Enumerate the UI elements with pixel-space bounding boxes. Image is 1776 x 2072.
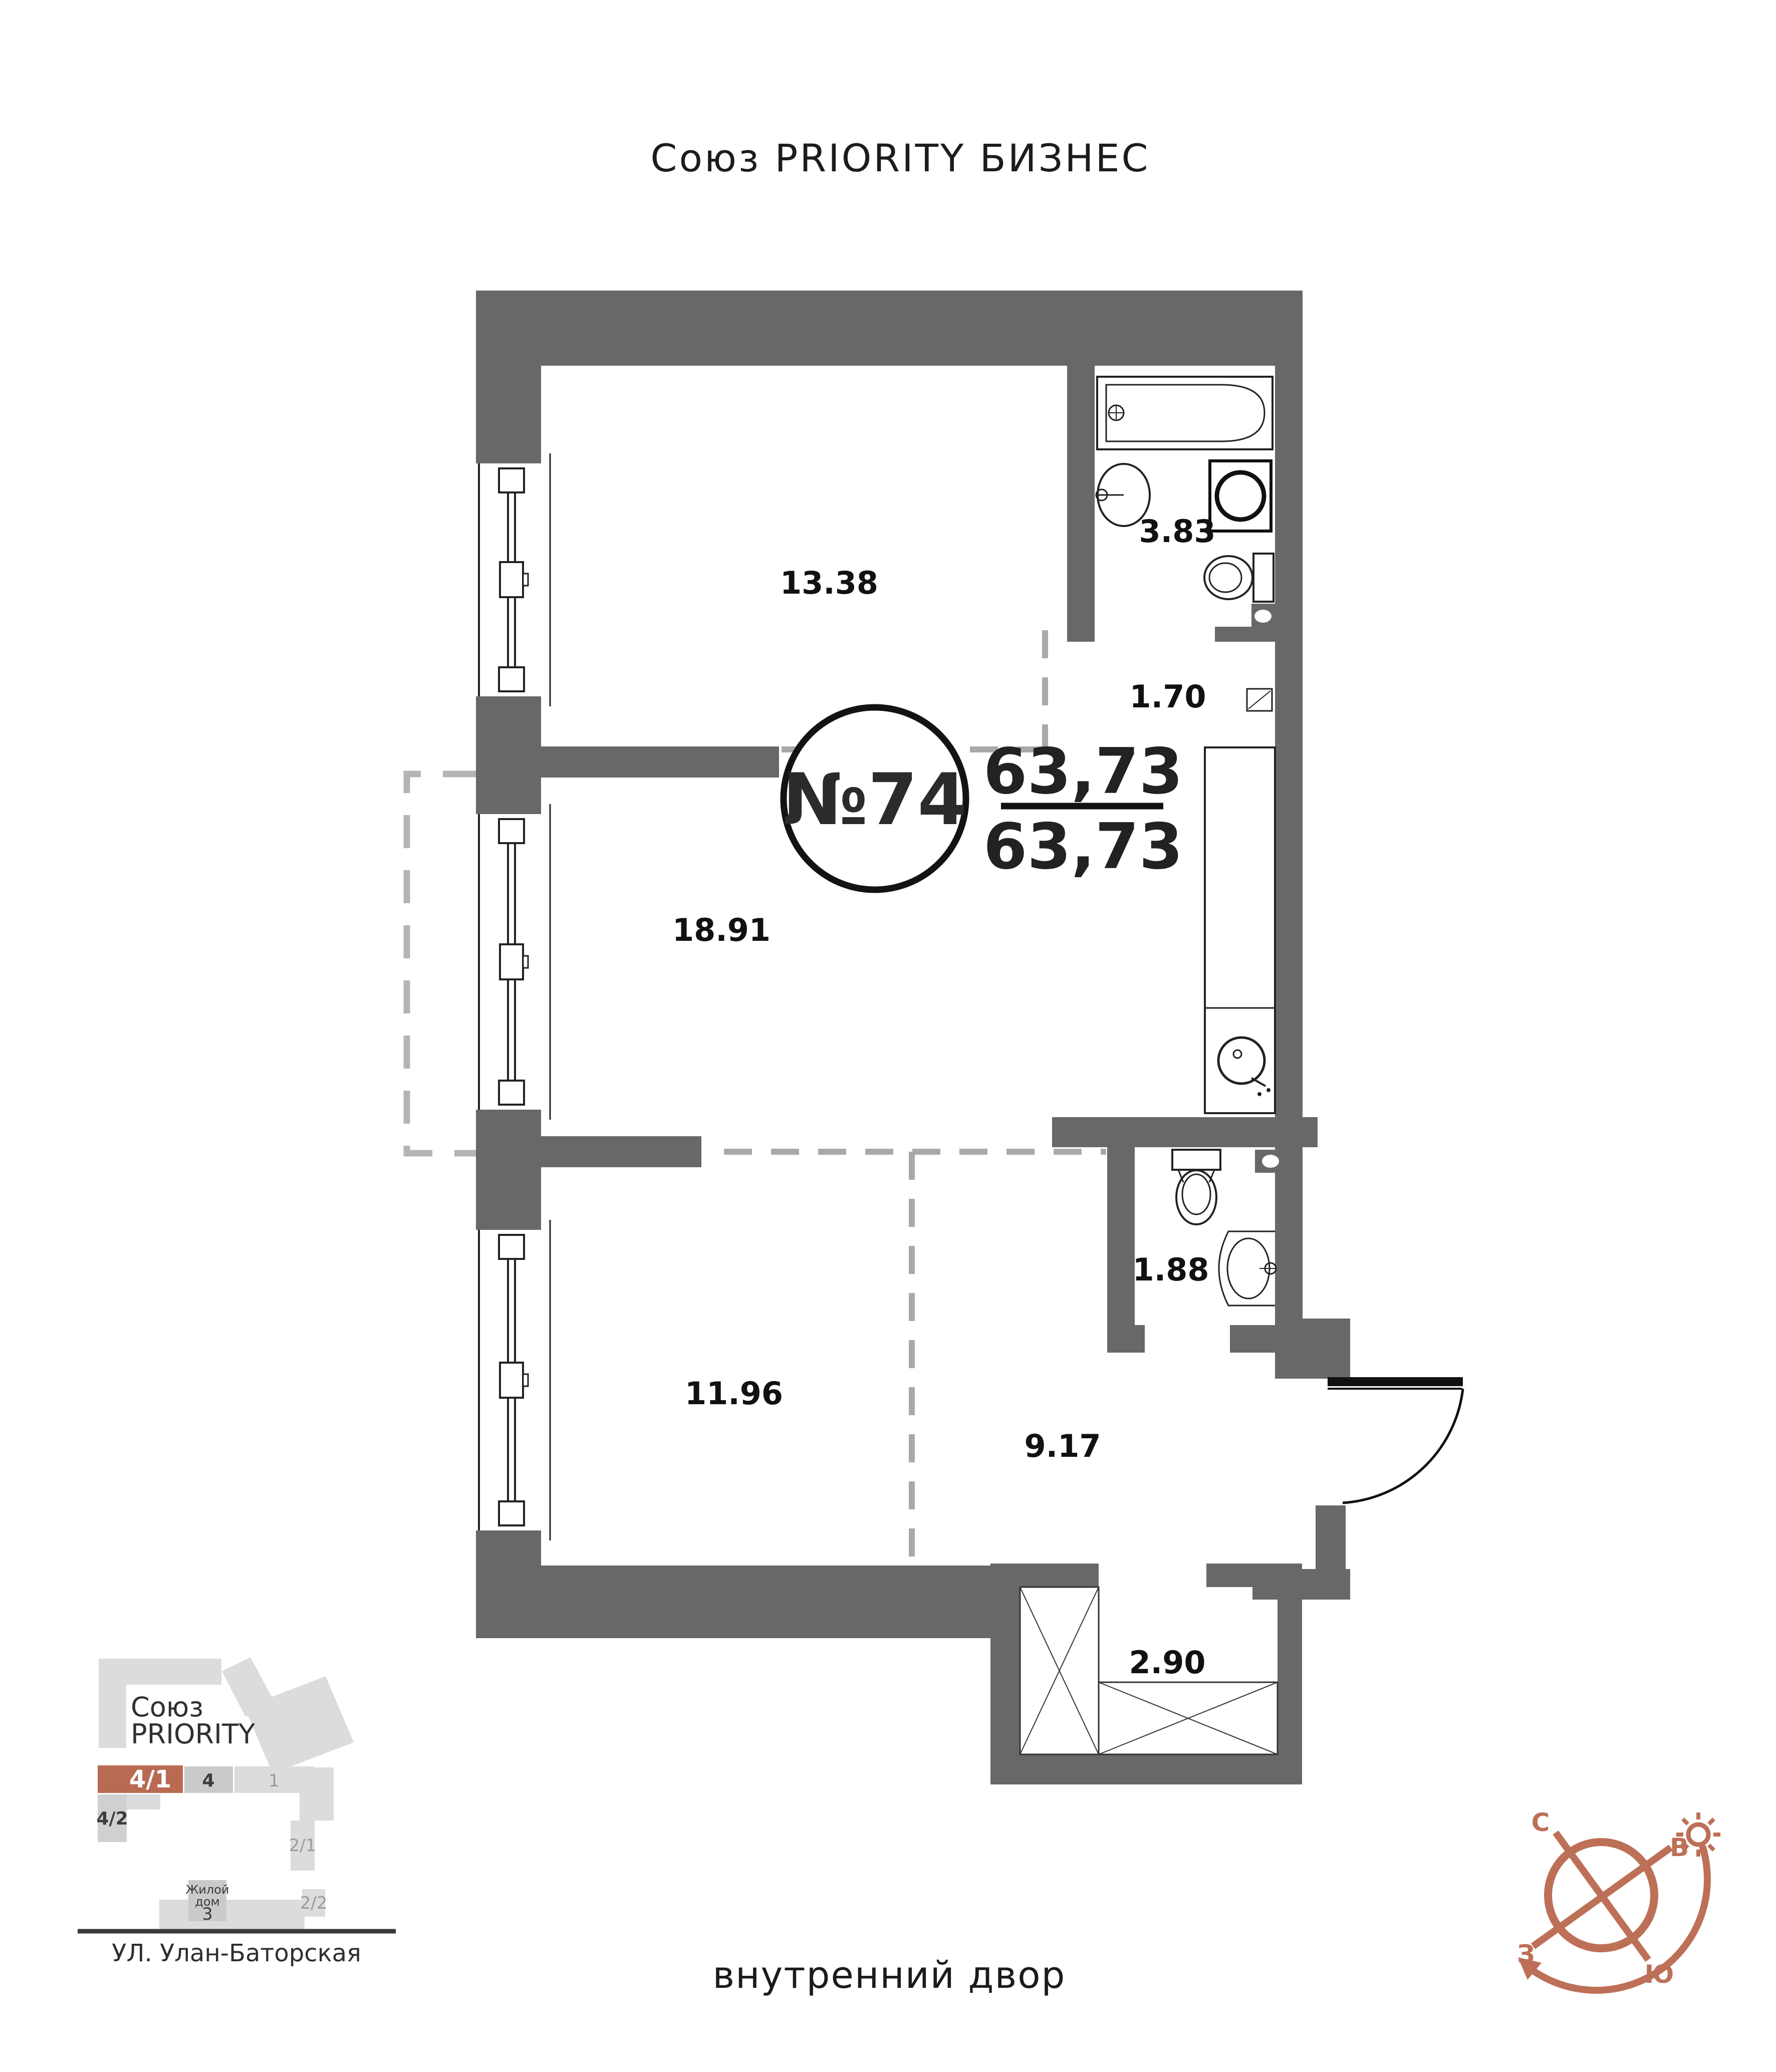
wall-partition-stub-1 [541, 746, 779, 778]
wall-balcony-left [990, 1564, 1020, 1784]
minimap-block-label: 4/2 [96, 1808, 128, 1829]
toilet-icon [1172, 1150, 1220, 1224]
minimap-block-4: 4 [184, 1766, 233, 1793]
compass-west: З [1517, 1940, 1535, 1969]
room-label-balcony: 2.90 [1129, 1644, 1206, 1681]
wall-left-1 [476, 366, 541, 463]
apartment-number: №74 [783, 758, 967, 841]
window-icon [479, 453, 550, 706]
street-label: УЛ. Улан-Баторская [112, 1939, 361, 1967]
wall-bath-left [1067, 366, 1095, 642]
wc-sink-icon [1219, 1231, 1277, 1306]
minimap-house-block: Жилой дом 3 [185, 1880, 229, 1924]
minimap-project-line2: PRIORITY [131, 1718, 256, 1750]
minimap-block-label: 2/2 [300, 1893, 328, 1913]
room-label-wc: 1.88 [1133, 1251, 1209, 1288]
vent-shaft-icon [1251, 604, 1275, 629]
minimap-block-2-2: 2/2 [300, 1889, 328, 1917]
windows [479, 453, 550, 1540]
wall-wc-left [1107, 1147, 1135, 1325]
wall-left-3 [476, 1110, 541, 1230]
courtyard-label: внутренний двор [713, 1954, 1066, 1997]
wall-wc-top [1052, 1117, 1318, 1147]
entry-door-icon [1328, 1382, 1463, 1503]
bathtub-icon [1097, 377, 1273, 449]
minimap-house-number: 3 [202, 1904, 213, 1924]
wall-bath-bottom [1215, 627, 1275, 642]
wall-entry-step [1275, 1319, 1350, 1379]
toilet-icon [1204, 554, 1274, 602]
door-swing-arc [1343, 1389, 1463, 1503]
wall-below-door [1316, 1505, 1346, 1576]
kitchen-counter [1205, 747, 1275, 1113]
washing-machine-icon [1210, 461, 1271, 531]
window-icon [479, 804, 550, 1120]
minimap-block-4-2: 4/2 [96, 1794, 128, 1842]
room-label-bedroom-2: 11.96 [685, 1375, 783, 1412]
bathroom-fixtures [1096, 377, 1275, 629]
wall-balcony-bottom [990, 1754, 1302, 1784]
wall-wc-bottom-left [1107, 1325, 1145, 1353]
wall-right [1275, 366, 1303, 1319]
wall-partition-stub-2 [541, 1136, 701, 1167]
compass-icon [1518, 1812, 1720, 1990]
vent-shaft-icon [1255, 1150, 1286, 1173]
wall-top [476, 291, 1303, 366]
living-area: 63,73 [983, 810, 1183, 883]
balcony-projection-outline [407, 774, 476, 1153]
minimap-block-4-1: 4/1 [98, 1765, 183, 1793]
wall-left-2 [476, 696, 541, 814]
site-minimap: Союз PRIORITY 4/1 4 1 4/2 2/1 2/2 Жилой [78, 1657, 396, 1967]
room-label-hallway: 9.17 [1025, 1428, 1101, 1464]
minimap-block-label: 1 [269, 1771, 280, 1791]
room-label-bedroom: 13.38 [780, 565, 878, 601]
page-title: Союз PRIORITY БИЗНЕС [650, 136, 1150, 180]
wall-balcony-right [1278, 1564, 1302, 1784]
compass-south: Ю [1645, 1960, 1674, 1989]
minimap-block-label: 4/1 [129, 1765, 171, 1793]
room-label-corridor: 1.70 [1130, 678, 1206, 715]
wall-bottom [476, 1566, 1002, 1638]
apartment-number-badge: №74 [783, 707, 967, 890]
room-label-living: 18.91 [672, 912, 771, 948]
total-area: 63,73 [983, 734, 1183, 808]
minimap-block-label: 2/1 [289, 1836, 317, 1856]
minimap-block-2-1: 2/1 [289, 1821, 317, 1871]
cabinet-icon [1247, 689, 1272, 711]
minimap-block-1: 1 [234, 1766, 314, 1793]
room-label-bathroom: 3.83 [1139, 513, 1216, 550]
compass-north: С [1532, 1808, 1550, 1837]
compass-east: В [1670, 1833, 1689, 1862]
minimap-block-label: 4 [202, 1770, 214, 1791]
wall-wc-bottom-right [1230, 1325, 1275, 1353]
window-icon [479, 1220, 550, 1540]
floor-plan: 13.38 3.83 1.70 18.91 11.96 1.88 9.17 2.… [407, 291, 1463, 1784]
area-fraction: 63,73 63,73 [983, 734, 1183, 883]
